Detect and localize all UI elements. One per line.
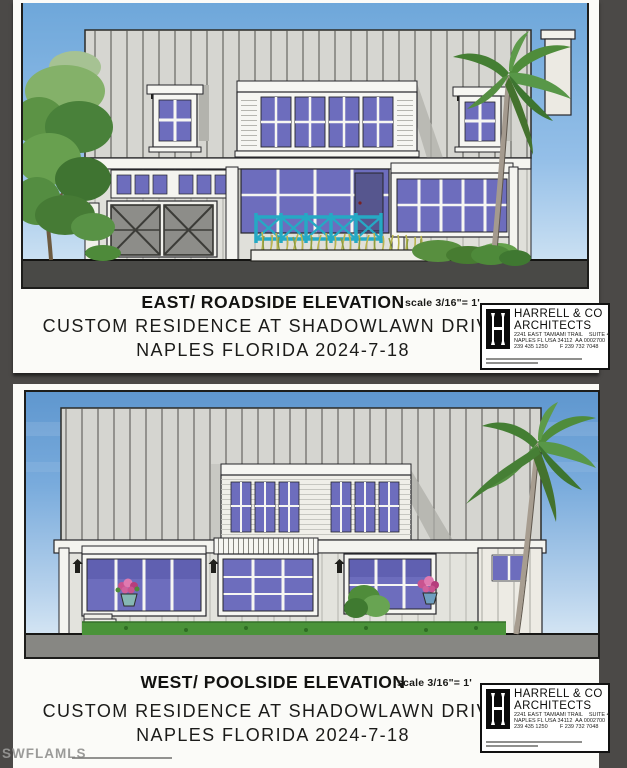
stamp-text-block: HARRELL & CO ARCHITECTS 2241 EAST TAMIAM… [514,688,606,731]
center-slider-windows [214,538,318,616]
stamp-phone-line: 239 435 1250 F 239 732 7048 [514,724,606,730]
east-address-line2: NAPLES FLORIDA 2024-7-18 [33,339,513,363]
ground-strip [26,634,598,657]
east-address-line1: CUSTOM RESIDENCE AT SHADOWLAWN DRIVE [33,315,513,339]
chimney [541,30,575,115]
ground-strip [23,260,587,287]
stamp-text-block: HARRELL & CO ARCHITECTS 2241 EAST TAMIAM… [514,308,606,351]
west-address-line1: CUSTOM RESIDENCE AT SHADOWLAWN DRIVE [33,700,513,724]
sheet-west-elevation: WEST/ POOLSIDE ELEVATION scale 3/16"= 1'… [13,384,599,768]
stamp-fineprint-line [486,362,538,364]
west-elevation-drawing [24,390,600,659]
stamp-firm-line1: HARRELL & CO [514,308,606,320]
east-address-block: CUSTOM RESIDENCE AT SHADOWLAWN DRIVE NAP… [33,315,513,362]
garage-door-left [111,205,160,255]
west-address-block: CUSTOM RESIDENCE AT SHADOWLAWN DRIVE NAP… [33,700,513,747]
mls-photo-architectural-elevations: { "photo": { "watermark": "SWFLAMLS" }, … [0,0,627,768]
stamp-phone-line: 239 435 1250 F 239 732 7048 [514,344,606,350]
west-scale-label: scale 3/16"= 1' [397,677,472,689]
mls-watermark-underline [72,757,172,759]
stamp-firm-line2: ARCHITECTS [514,320,606,332]
garage-door-right [164,205,213,255]
west-address-line2: NAPLES FLORIDA 2024-7-18 [33,724,513,748]
upper-window-right [453,87,507,152]
stamp-fineprint-line [486,358,582,360]
east-elevation-sketch [23,3,587,287]
harrell-logo-icon [486,689,510,729]
left-slider-windows [82,546,206,616]
planter-curb [251,250,427,261]
corner-trim [59,548,69,634]
right-annex [478,548,542,634]
stamp-firm-line1: HARRELL & CO [514,688,606,700]
east-elevation-drawing [21,3,589,289]
stamp-fineprint-line [486,745,538,747]
house-west [54,408,546,634]
upper-window-band-center [235,81,419,157]
stamp-fineprint-line [486,741,582,743]
east-scale-label: scale 3/16"= 1' [405,297,480,309]
upper-window-left [147,85,203,152]
harrell-logo-icon [486,309,510,349]
sheet-east-elevation: EAST/ ROADSIDE ELEVATION scale 3/16"= 1'… [13,0,599,373]
stamp-firm-line2: ARCHITECTS [514,700,606,712]
lawn-strip [82,622,506,635]
architect-stamp-east: HARRELL & CO ARCHITECTS 2241 EAST TAMIAM… [480,303,610,370]
west-elevation-sketch [26,392,598,657]
architect-stamp-west: HARRELL & CO ARCHITECTS 2241 EAST TAMIAM… [480,683,610,753]
